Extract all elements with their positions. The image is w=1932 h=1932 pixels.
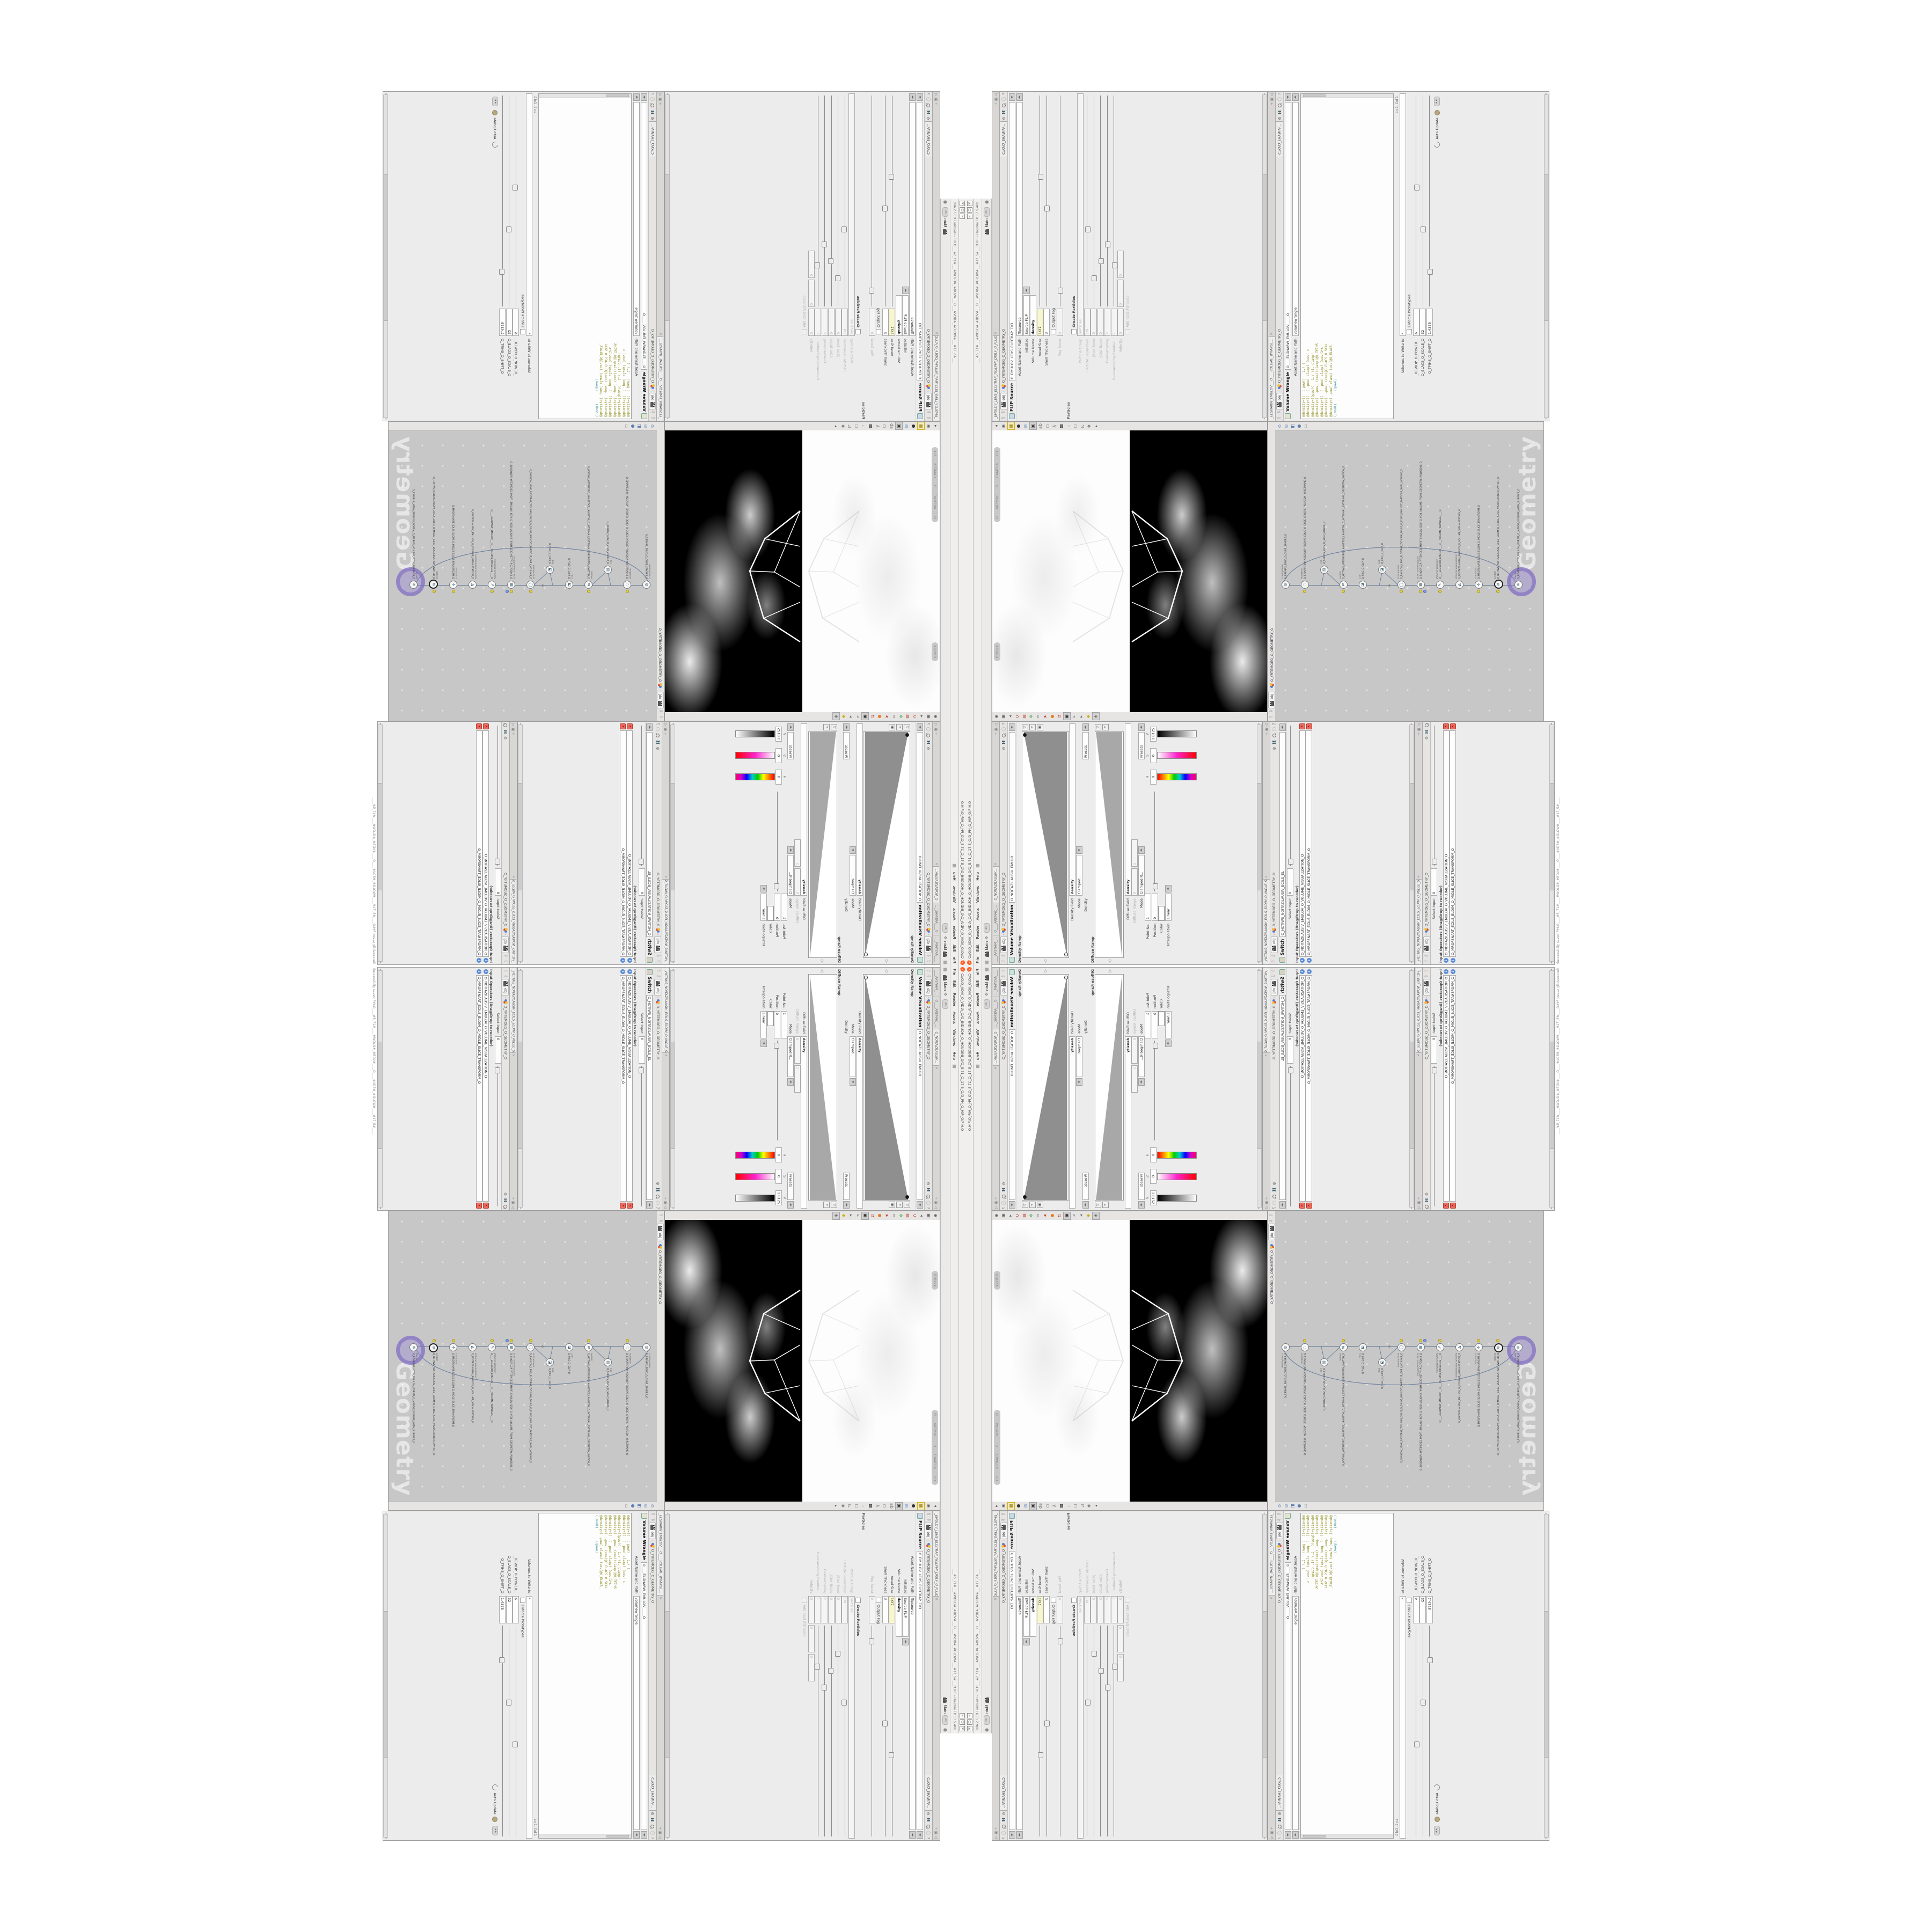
ramp-point[interactable] bbox=[905, 733, 909, 737]
bucket-tool-icon[interactable]: ◆ bbox=[1085, 1212, 1092, 1219]
node-clip[interactable]: ◪ bbox=[565, 581, 573, 589]
scroll-pill[interactable]: ◂ ▸ bbox=[984, 999, 990, 1009]
tab-flip-source[interactable]: _EMULOV_LEHS_ELCITRAP_TICILPMI_DIULF_O_F… bbox=[993, 1511, 999, 1597]
next-icon[interactable]: ▸ bbox=[1093, 423, 1100, 430]
diffuse-field-input[interactable]: density bbox=[1125, 723, 1131, 896]
context-chip[interactable]: obj bbox=[1268, 692, 1275, 708]
input-operator-item[interactable]: O_NOITAZILAUSIV_EMULOV_O_VOLUME_VISUALIZ… bbox=[482, 730, 489, 957]
bucket-tool-icon[interactable]: ◆ bbox=[840, 1212, 847, 1219]
ramp-add-button[interactable]: + bbox=[824, 1202, 830, 1208]
density-ramp-widget[interactable]: ◁ ▽ + ▣ bbox=[1022, 722, 1069, 964]
gear-icon[interactable]: ⚙ bbox=[503, 1192, 508, 1196]
scissors-tool-icon[interactable]: ✂ bbox=[890, 1212, 897, 1219]
reorder-icon[interactable]: ↕ bbox=[484, 958, 488, 963]
eye-icon[interactable]: ◉ bbox=[1000, 423, 1007, 430]
context-chip[interactable]: obj bbox=[1276, 393, 1283, 409]
horizontal-scrollbar[interactable]: ◂▸ bbox=[1262, 1512, 1267, 1839]
info-icon[interactable]: ⓘ bbox=[926, 727, 932, 731]
power-param-slider[interactable] bbox=[1414, 96, 1419, 306]
diamond-tool-icon[interactable]: ◈ bbox=[832, 713, 840, 721]
search-icon[interactable] bbox=[1002, 1195, 1006, 1198]
node-name-field[interactable]: O_NOITAZILAUSIV_EMULO bbox=[1009, 732, 1015, 903]
tab-path[interactable]: C:/O/O_ERAWTF... bbox=[649, 121, 656, 157]
frame-icon[interactable]: ▭ bbox=[1303, 424, 1308, 428]
clipboard-tool-icon[interactable]: ▤ bbox=[904, 1212, 911, 1219]
node-vdbfrompolygons[interactable]: ▦ bbox=[1417, 1343, 1425, 1351]
velocity-x-field[interactable]: 0 bbox=[1117, 309, 1124, 336]
mode2-dropdown[interactable]: Clamped R... bbox=[787, 855, 794, 896]
menu-help[interactable]: Help bbox=[953, 1051, 957, 1060]
eye-icon[interactable]: ◉ bbox=[925, 423, 932, 430]
breadcrumb[interactable]: O_YRTEMOEG_O_GEOMETRY_O bbox=[926, 157, 931, 383]
nav-down-icon[interactable]: ⇩ bbox=[656, 954, 661, 958]
pane-corner-icons[interactable]: + ▣ ◁ bbox=[1264, 722, 1269, 735]
jitter-seed-slider[interactable] bbox=[1091, 1626, 1096, 1836]
shell-thickness-slider[interactable] bbox=[883, 96, 888, 306]
breadcrumb[interactable]: O_YRTEMOEG_O_GEOMETRY_O bbox=[1424, 1006, 1429, 1191]
diamond-tool-icon[interactable]: ◈ bbox=[1092, 713, 1100, 721]
initialize-dropdown[interactable]: Source FLIP bbox=[902, 295, 909, 336]
shell-thickness-field[interactable]: 3 bbox=[1043, 1596, 1050, 1623]
tab-close-icon[interactable]: ✕ bbox=[934, 1067, 938, 1070]
shift-param-field[interactable]: 1.4375 bbox=[1426, 1596, 1433, 1623]
mode-dropdown[interactable]: Clamped... bbox=[1076, 855, 1082, 896]
frame-icon[interactable]: ▭ bbox=[624, 1504, 629, 1508]
delete-input-button[interactable]: ✕ bbox=[620, 1203, 626, 1209]
nav-down-icon[interactable]: ⇩ bbox=[1269, 1219, 1274, 1223]
scroll-pill[interactable]: ◂ ▸ bbox=[492, 97, 498, 106]
wire-sphere-icon[interactable]: ○ bbox=[1044, 423, 1051, 430]
gear-icon[interactable]: ⚙ bbox=[1277, 116, 1282, 120]
context-chip[interactable]: obj bbox=[1000, 1523, 1007, 1539]
menu-help[interactable]: Help bbox=[953, 872, 957, 881]
translate-tool-icon[interactable]: ➤ bbox=[883, 1212, 890, 1219]
val-bar[interactable] bbox=[1157, 731, 1197, 738]
scroll-pill[interactable]: ◂ ▸ bbox=[942, 999, 948, 1009]
velocity-y-field[interactable]: 0 bbox=[1117, 1625, 1124, 1652]
nav-up-icon[interactable]: ⇧ bbox=[650, 416, 655, 420]
node-volumewrangle[interactable]: ✎ bbox=[488, 581, 496, 589]
create-particles-checkbox[interactable] bbox=[1071, 1598, 1077, 1603]
gear-icon[interactable]: ⚙ bbox=[1424, 736, 1429, 740]
vex-code-editor[interactable]: @density=(( ( pow(( 1./ ( @density=(( ( … bbox=[539, 93, 632, 419]
delete-input-button[interactable]: ✕ bbox=[476, 723, 482, 729]
input-operator-item[interactable]: O_MROFSNART_ECILS_ELDIM_O_MIDLE_SLICE_TR… bbox=[620, 975, 626, 1202]
mode2-dropdown[interactable]: Clamped R... bbox=[787, 1036, 794, 1077]
select-input-field[interactable]: 0 bbox=[1287, 868, 1293, 896]
ramp-point[interactable] bbox=[1064, 953, 1068, 956]
scroll-pill[interactable]: ◂ ▸ bbox=[942, 923, 948, 933]
voxel-size-field[interactable]: 1/27 bbox=[889, 1596, 895, 1623]
shade-box-icon[interactable]: ▣ bbox=[895, 422, 903, 430]
oversampling-bandwidth-field[interactable]: 1 bbox=[1111, 309, 1117, 336]
nav-down-icon[interactable]: ⇩ bbox=[926, 1518, 931, 1522]
node-cubesphere[interactable]: ◍ bbox=[1282, 1343, 1290, 1351]
delete-input-button[interactable]: ✕ bbox=[627, 723, 633, 729]
help-icon[interactable]: ? bbox=[926, 723, 931, 725]
jitter-seed-field[interactable]: 0 bbox=[1091, 309, 1097, 336]
jitter-scale-slider[interactable] bbox=[1098, 96, 1103, 306]
delete-input-button[interactable]: ✕ bbox=[1299, 1203, 1305, 1209]
pin-icon[interactable]: ⊙ bbox=[650, 1504, 655, 1508]
tab-mantra[interactable]: ____ARTNAM_... bbox=[993, 935, 999, 964]
help-icon[interactable]: ? bbox=[1272, 723, 1277, 725]
power-param-field[interactable]: 6 bbox=[1413, 309, 1419, 336]
volume-name-field[interactable]: density bbox=[896, 295, 902, 336]
horizontal-scrollbar[interactable]: ◂▸ bbox=[384, 93, 388, 420]
menu-render[interactable]: Render bbox=[953, 926, 957, 939]
display-flag[interactable] bbox=[1303, 590, 1306, 593]
spinner-chip[interactable]: ◂▸ bbox=[917, 1201, 924, 1209]
jitter-scale-slider[interactable] bbox=[829, 1626, 834, 1836]
asset-name-field[interactable]: flipsource bbox=[1016, 102, 1023, 336]
asset-name-field[interactable]: volumewrangle bbox=[1292, 102, 1299, 336]
hue-input[interactable]: 0 bbox=[775, 1147, 782, 1162]
context-chip[interactable]: obj bbox=[1000, 979, 1007, 996]
camera-tool-icon[interactable]: ◉ bbox=[993, 1212, 1000, 1219]
horizontal-scrollbar[interactable]: ◂▸ bbox=[1544, 93, 1548, 420]
node-polywire[interactable]: ◌ bbox=[623, 1343, 631, 1351]
tab-close-icon[interactable]: ✕ bbox=[664, 875, 668, 878]
horizontal-scrollbar[interactable]: ◂▸ bbox=[1257, 723, 1261, 963]
density-field-input[interactable]: density bbox=[857, 723, 863, 896]
ramp-flip-button[interactable]: ▽ bbox=[1022, 724, 1028, 730]
code-scrollbar[interactable] bbox=[1301, 1834, 1393, 1838]
back-icon[interactable]: ◂ bbox=[1007, 713, 1014, 720]
velocity-z-field[interactable]: 0 bbox=[1117, 1654, 1124, 1681]
auto-update-selector[interactable]: Auto Update bbox=[1435, 1792, 1439, 1814]
context-chip[interactable]: obj bbox=[1000, 936, 1007, 953]
gear-icon[interactable]: ⚙ bbox=[1001, 747, 1006, 750]
tab-flip-source[interactable]: _EMULOV_LEHS_ELCITRAP_TICILPMI_DIULF_O_F… bbox=[933, 335, 940, 421]
sat-bar[interactable] bbox=[1157, 752, 1197, 759]
info-icon[interactable]: ⓘ bbox=[1001, 1201, 1007, 1205]
asset-name-field[interactable]: flipsource bbox=[1016, 1596, 1023, 1830]
velocity-z-field[interactable]: 0 bbox=[1117, 251, 1124, 278]
back-icon[interactable]: ◂ bbox=[918, 1212, 925, 1219]
asset-name-field[interactable]: volumewrangle bbox=[633, 1596, 640, 1830]
tab-close-icon[interactable]: ✕ bbox=[934, 1598, 938, 1600]
node-switch[interactable]: ⇄ bbox=[1340, 581, 1348, 589]
tripod-icon[interactable]: ⅄ bbox=[874, 423, 881, 430]
scale-param-field[interactable]: 32 bbox=[1419, 309, 1426, 336]
sat-bar[interactable] bbox=[1157, 1173, 1197, 1180]
menu-assets[interactable]: Assets bbox=[976, 1012, 980, 1024]
create-particles-checkbox[interactable] bbox=[1071, 329, 1077, 334]
horizontal-scrollbar[interactable]: ◂▸ bbox=[518, 969, 523, 1209]
wire-sphere-icon[interactable]: ○ bbox=[881, 1503, 888, 1510]
help-icon[interactable]: ? bbox=[926, 1837, 931, 1839]
display-flag[interactable] bbox=[1477, 590, 1480, 593]
tab-path[interactable]: C:/O/O_ERAWTF... bbox=[1276, 121, 1283, 157]
pane-corner-icons[interactable]: + ▣ ◁ bbox=[658, 92, 663, 105]
breadcrumb[interactable]: O_YRTEMOEG_O_GEOMETRY_O bbox=[1424, 741, 1429, 926]
maximize-button[interactable]: ▢ bbox=[967, 207, 972, 213]
initialize-dropdown[interactable]: Source FLIP bbox=[902, 1596, 909, 1637]
pane-tool-icon[interactable]: ▣ bbox=[925, 1212, 932, 1219]
diffuse-range-min[interactable]: 0 bbox=[1131, 1036, 1138, 1064]
node-clip[interactable]: ◪ bbox=[565, 1343, 573, 1351]
gear-icon[interactable]: ⚙ bbox=[656, 747, 661, 750]
menu-file[interactable]: File bbox=[976, 969, 980, 975]
pane-corner-icons[interactable]: + ▣ ◁ bbox=[658, 1827, 663, 1840]
oversampling-bandwidth-slider[interactable] bbox=[815, 1626, 821, 1836]
gear-icon[interactable]: ⚙ bbox=[926, 1182, 931, 1185]
scroll-pill[interactable]: ◂ ▸ bbox=[942, 1715, 948, 1725]
help-icon[interactable]: ? bbox=[656, 1207, 661, 1209]
node-merge[interactable]: ⊕ bbox=[1514, 1343, 1523, 1351]
spinner-chip[interactable]: ◂▸ bbox=[1009, 723, 1015, 731]
initialize-dropdown[interactable]: Source FLIP bbox=[1023, 1596, 1030, 1637]
node-name-field[interactable]: O____ELGNARW_EMULOV_____O bbox=[1285, 102, 1291, 370]
display-flag[interactable] bbox=[510, 1339, 513, 1342]
presets-dropdown[interactable]: Presets bbox=[1082, 732, 1089, 759]
breadcrumb[interactable]: O_YRTEMOEG_O_GEOMETRY_O bbox=[650, 157, 655, 383]
reorder-icon[interactable]: ↕ bbox=[1444, 958, 1448, 963]
info-icon[interactable]: ⓘ bbox=[650, 1831, 656, 1835]
gear-icon[interactable]: ⚙ bbox=[1001, 116, 1006, 120]
particle-group-field[interactable]: particles bbox=[1077, 93, 1084, 336]
horizontal-scrollbar[interactable]: ◂▸ bbox=[671, 723, 675, 963]
curve-icon[interactable]: ◞ bbox=[1065, 423, 1072, 430]
bypass-flag[interactable] bbox=[506, 1339, 509, 1342]
horizontal-scrollbar[interactable]: ◂▸ bbox=[378, 723, 383, 963]
tab-path[interactable]: C:/O/O_ERAWTF... bbox=[1000, 1775, 1007, 1811]
oversampling-bandwidth-field[interactable]: 1 bbox=[815, 309, 821, 336]
close-button[interactable]: ✕ bbox=[960, 201, 965, 206]
enforce-prototypes-checkbox[interactable] bbox=[520, 1598, 525, 1603]
dark-ball-icon[interactable]: ● bbox=[1015, 1503, 1022, 1510]
gear-icon[interactable]: ⚙ bbox=[1001, 1182, 1006, 1185]
mode2-dropdown[interactable]: Clamped R... bbox=[1138, 1036, 1145, 1077]
desktop-tab-main-2[interactable]: Main bbox=[943, 1704, 948, 1714]
breadcrumb[interactable]: O_YRTEMOEG_O_GEOMETRY_O bbox=[1001, 1006, 1006, 1181]
asset-name-field[interactable]: flipsource bbox=[909, 102, 916, 336]
pane-corner-icons[interactable]: + ▣ ◁ bbox=[934, 1197, 939, 1210]
jitter-scale-slider[interactable] bbox=[829, 96, 834, 306]
help-icon[interactable]: ? bbox=[926, 93, 931, 95]
poly-tool-icon[interactable]: ◺ bbox=[1079, 1503, 1086, 1510]
nav-down-icon[interactable]: ⇩ bbox=[926, 411, 931, 414]
position-input[interactable]: 0 bbox=[1152, 1011, 1158, 1038]
input-operator-item[interactable]: O_NOITAZILAUSIV_EMULOV_O_VOLUME_VISUALIZ… bbox=[1299, 730, 1306, 957]
diffuse-ramp-widget[interactable]: ◁ ▽ + bbox=[1095, 722, 1125, 964]
nav-up-icon[interactable]: ⇧ bbox=[1001, 960, 1006, 963]
back-icon[interactable]: ◂ bbox=[993, 1503, 1000, 1510]
help-icon[interactable]: ? bbox=[650, 1837, 655, 1839]
presets-dropdown[interactable]: Presets bbox=[843, 732, 850, 759]
ramp-box-button[interactable]: ▣ bbox=[1037, 724, 1043, 730]
fog-boost-slider[interactable] bbox=[1057, 96, 1063, 306]
info-icon[interactable]: ⓘ bbox=[926, 1831, 932, 1835]
shell-thickness-slider[interactable] bbox=[1044, 96, 1049, 306]
display-flag[interactable] bbox=[529, 1339, 532, 1342]
tab-switch[interactable]: _HCTIWS_NOITAZILAUSIV_ECILS_ELDIM_O_MIDL… bbox=[663, 968, 669, 1053]
hue-bar[interactable] bbox=[735, 1152, 775, 1159]
tab-path[interactable]: C:/O/O_ERAWTF... bbox=[1276, 1775, 1283, 1811]
tab-close-icon[interactable]: ✕ bbox=[1417, 1054, 1421, 1057]
cursor-tool-icon[interactable]: ➢ bbox=[854, 1212, 861, 1219]
pane-corner-icons[interactable]: + ▣ ◁ bbox=[934, 92, 939, 105]
select-input-slider[interactable] bbox=[1287, 1066, 1293, 1206]
nav-up-icon[interactable]: ⇧ bbox=[1001, 969, 1006, 972]
sphere-tool-icon[interactable]: ● bbox=[876, 713, 883, 720]
jitter-seed-field[interactable]: 0 bbox=[1091, 1596, 1097, 1623]
help-icon[interactable]: ? bbox=[926, 1207, 931, 1209]
oversampling-slider[interactable] bbox=[1104, 1626, 1110, 1836]
view-ortho-pill[interactable]: Ortho ▾ bbox=[932, 1271, 938, 1290]
axis-tool-icon[interactable]: ✲ bbox=[897, 1212, 904, 1219]
breadcrumb[interactable]: O_YRTEMOEG_O_GEOMETRY_O bbox=[650, 1549, 655, 1776]
point-no-input[interactable]: 1 bbox=[1145, 894, 1151, 921]
td-box-icon[interactable]: ▣ bbox=[861, 713, 869, 721]
tripod-icon[interactable]: ⅄ bbox=[1051, 1503, 1058, 1510]
velocity-y-field[interactable]: 0 bbox=[808, 1625, 815, 1652]
context-chip[interactable]: obj bbox=[1271, 936, 1278, 953]
abc-label-icon[interactable]: ab bbox=[1037, 423, 1044, 430]
tab-path[interactable]: C:/O/O_ERAWTF... bbox=[925, 121, 932, 157]
menu-windows[interactable]: Windows bbox=[953, 1029, 957, 1046]
oversampling-field[interactable]: 2 bbox=[822, 309, 828, 336]
diffuse-ramp-widget[interactable]: ◁ ▽ + bbox=[808, 968, 838, 1210]
enforce-prototypes-checkbox[interactable] bbox=[1407, 329, 1412, 334]
particle-group-field[interactable]: particles bbox=[1077, 1596, 1084, 1839]
tab-close-icon[interactable]: ✕ bbox=[1264, 1054, 1268, 1057]
ramp-flip-button[interactable]: ▽ bbox=[904, 1202, 910, 1208]
tab-close-icon[interactable]: ✕ bbox=[1417, 875, 1421, 878]
volume-name-field[interactable]: density bbox=[1030, 1596, 1036, 1637]
tab-close-icon[interactable]: ✕ bbox=[994, 332, 998, 334]
menu-windows[interactable]: Windows bbox=[953, 886, 957, 903]
context-chip[interactable]: obj bbox=[655, 979, 662, 996]
diamond-tool-icon[interactable]: ◈ bbox=[1092, 1212, 1100, 1220]
input-operator-item[interactable]: O_MROFSNART_ECILS_ELDIM_O_MIDLE_SLICE_TR… bbox=[620, 730, 626, 957]
display-flag[interactable] bbox=[1496, 590, 1499, 593]
hue-input[interactable]: 0 bbox=[1150, 770, 1157, 785]
node-volumevisualization[interactable]: ◭ bbox=[469, 581, 477, 589]
nav-up-icon[interactable]: ⇧ bbox=[503, 969, 508, 972]
presets-dropdown[interactable]: Presets bbox=[1082, 1173, 1089, 1200]
node-name-field[interactable]: O_EMULOV_LEHS_ELCITRAP_TICI bbox=[1009, 102, 1015, 381]
display-flag[interactable] bbox=[1419, 590, 1422, 593]
close-button[interactable]: ✕ bbox=[960, 1726, 965, 1731]
breadcrumb[interactable]: O_YRTEMOEG_O_GEOMETRY_O bbox=[1277, 1549, 1282, 1776]
tab-volume-wrangle[interactable]: _ELGNARW_EMULOV___O____VOLUME_WRANGL... bbox=[657, 336, 664, 421]
tab-switch[interactable]: _HCTIWS_NOITAZILAUSIV_ECILS_ELDIM_O_MIDL… bbox=[1416, 968, 1422, 1053]
ball-icon[interactable]: ● bbox=[631, 1504, 635, 1508]
vex-code-editor[interactable]: @density=(( ( pow(( 1./ ( @density=(( ( … bbox=[1300, 93, 1394, 419]
cube-icon[interactable]: ◧ bbox=[637, 1504, 642, 1508]
sat-input[interactable]: 0 bbox=[1150, 748, 1157, 763]
clipboard-tool-icon[interactable]: ▤ bbox=[1021, 1212, 1028, 1219]
tab-volume-wrangle[interactable]: _ELGNARW_EMULOV___O____VOLUME_WRANGL... bbox=[657, 1511, 664, 1596]
shell-thickness-slider[interactable] bbox=[1044, 1626, 1049, 1836]
code-scrollbar[interactable] bbox=[1301, 94, 1393, 98]
particle-separation-slider[interactable] bbox=[842, 1626, 847, 1836]
nav-down-icon[interactable]: ⇩ bbox=[1424, 954, 1429, 958]
tab-visualization[interactable]: O_NOITAZILAUSIV... bbox=[933, 1029, 940, 1065]
sphere-tool-icon[interactable]: ● bbox=[1049, 1212, 1056, 1219]
dark-ball-icon[interactable]: ● bbox=[910, 423, 917, 430]
search-icon[interactable] bbox=[504, 1205, 508, 1209]
tab-close-icon[interactable]: ✕ bbox=[511, 875, 515, 878]
tab-visualization[interactable]: O_NOITAZILAUSIV... bbox=[933, 866, 940, 902]
gear-icon[interactable]: ⚙ bbox=[503, 736, 508, 740]
diffuse-field-input[interactable]: density bbox=[801, 1036, 807, 1209]
bullseye-icon[interactable]: ◎ bbox=[903, 423, 910, 430]
mode-dropdown[interactable]: Clamped... bbox=[1076, 1036, 1082, 1077]
diffuse-range-max[interactable]: 1 bbox=[794, 1065, 801, 1093]
node-file[interactable]: ▤ bbox=[604, 566, 612, 574]
tab-close-icon[interactable]: ✕ bbox=[664, 1054, 668, 1057]
point-no-input[interactable]: 1 bbox=[781, 1011, 787, 1038]
quadview-grid-icon[interactable]: ▦ bbox=[917, 1502, 925, 1510]
camera-tool-icon[interactable]: ◉ bbox=[932, 713, 939, 720]
input-operator-item[interactable]: O_MROFSNART_ECILS_ELDIM_O_MIDLE_SLICE_TR… bbox=[476, 730, 482, 957]
nav-down-icon[interactable]: ⇩ bbox=[1424, 975, 1429, 978]
power-param-field[interactable]: 6 bbox=[513, 1596, 519, 1623]
search-icon[interactable] bbox=[1425, 1205, 1429, 1209]
context-chip[interactable]: obj bbox=[655, 936, 662, 953]
nav-up-icon[interactable]: ⇧ bbox=[1001, 416, 1006, 420]
particle-separation-slider[interactable] bbox=[842, 96, 847, 306]
context-chip[interactable]: obj bbox=[1268, 1224, 1275, 1240]
code-scrollbar[interactable] bbox=[539, 1834, 632, 1838]
ramp-add-button[interactable]: + bbox=[896, 1202, 903, 1208]
node-clip[interactable]: ◪ bbox=[1378, 566, 1386, 574]
horizontal-scrollbar[interactable]: ◂▸ bbox=[1549, 969, 1554, 1209]
context-chip[interactable]: obj bbox=[925, 393, 932, 409]
nav-down-icon[interactable]: ⇩ bbox=[1277, 1518, 1282, 1522]
particles-section-label[interactable]: Particles bbox=[862, 92, 868, 421]
fog-boost-field[interactable]: 0 bbox=[869, 1596, 875, 1623]
nav-down-icon[interactable]: ⇩ bbox=[1272, 954, 1277, 958]
auto-update-selector[interactable]: Auto Update bbox=[493, 118, 497, 140]
poly-tool-icon[interactable]: ◻ bbox=[1072, 423, 1079, 430]
ramp-flip-button[interactable]: ▽ bbox=[1095, 1202, 1101, 1208]
info-icon[interactable]: ⓘ bbox=[926, 1201, 932, 1205]
jitter-seed-slider[interactable] bbox=[1091, 96, 1096, 306]
jitter-seed-field[interactable]: 0 bbox=[835, 309, 841, 336]
input-operator-item[interactable]: O_MROFSNART_ECILS_ELDIM_O_MIDLE_SLICE_TR… bbox=[1450, 975, 1456, 1202]
shift-param-field[interactable]: 1.4375 bbox=[499, 1596, 506, 1623]
snap-tool-icon[interactable]: ❖ bbox=[839, 1503, 846, 1510]
display-flag[interactable] bbox=[1400, 590, 1403, 593]
display-flag[interactable] bbox=[491, 590, 494, 593]
magnet-tool-icon[interactable]: ∪ bbox=[1014, 1212, 1021, 1219]
display-flag[interactable] bbox=[491, 1339, 494, 1342]
ball-icon[interactable]: ● bbox=[631, 425, 635, 428]
particle-group-field[interactable]: particles bbox=[848, 1596, 855, 1839]
position-slider[interactable] bbox=[1152, 792, 1158, 891]
val-input[interactable]: 1.8125 bbox=[1150, 1190, 1157, 1205]
node-transform[interactable]: ✛ bbox=[449, 581, 457, 589]
tab-visualization[interactable]: O_NOITAZILAUSIV... bbox=[993, 866, 999, 902]
reorder-icon[interactable]: ↕ bbox=[1451, 958, 1455, 963]
add-rest-checkbox[interactable] bbox=[802, 329, 807, 334]
bullseye-icon[interactable]: ◎ bbox=[903, 1503, 910, 1510]
tab-close-icon[interactable]: ✕ bbox=[934, 332, 938, 334]
input-operator-item[interactable]: O_NOITAZILAUSIV_EMULOV_O_VOLUME_VISUALIZ… bbox=[1299, 975, 1306, 1202]
rotate-tool-icon[interactable]: ◔ bbox=[869, 1212, 876, 1219]
tab-close-icon[interactable]: ✕ bbox=[658, 332, 662, 335]
tab-switch[interactable]: _HCTIWS_NOITAZILAUSIV_ECILS_ELDIM_O_MIDL… bbox=[1263, 879, 1270, 964]
horizontal-scrollbar[interactable]: ◂▸ bbox=[1257, 969, 1261, 1209]
poly-tool-icon[interactable]: ◻ bbox=[1072, 1503, 1079, 1510]
val-input[interactable]: 1.8125 bbox=[775, 727, 782, 742]
input-operator-item[interactable]: O_MROFSNART_ECILS_ELDIM_O_MIDLE_SLICE_TR… bbox=[1306, 730, 1312, 957]
rotate-tool-icon[interactable]: ◔ bbox=[1056, 713, 1063, 720]
